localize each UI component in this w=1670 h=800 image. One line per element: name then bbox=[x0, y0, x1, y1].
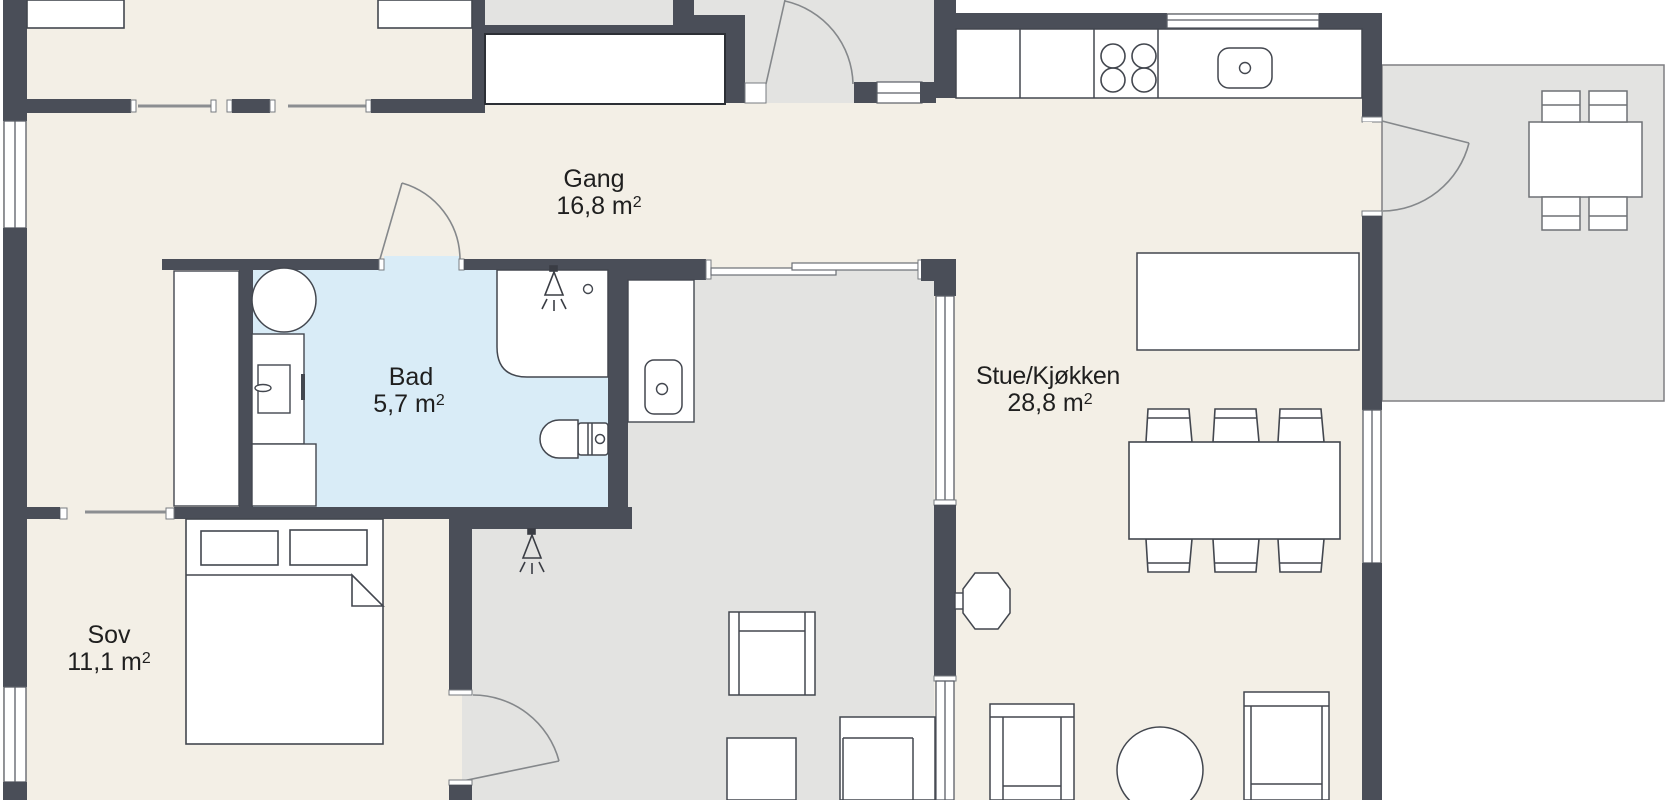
svg-text:Bad: Bad bbox=[389, 363, 433, 391]
svg-text:Stue/Kjøkken: Stue/Kjøkken bbox=[976, 362, 1120, 390]
svg-text:Sov: Sov bbox=[87, 621, 131, 649]
svg-text:Gang: Gang bbox=[563, 165, 624, 193]
svg-text:28,8 m2: 28,8 m2 bbox=[1007, 389, 1092, 417]
svg-text:16,8 m2: 16,8 m2 bbox=[556, 192, 641, 220]
svg-text:5,7 m2: 5,7 m2 bbox=[373, 390, 445, 418]
svg-text:11,1 m2: 11,1 m2 bbox=[67, 648, 151, 676]
